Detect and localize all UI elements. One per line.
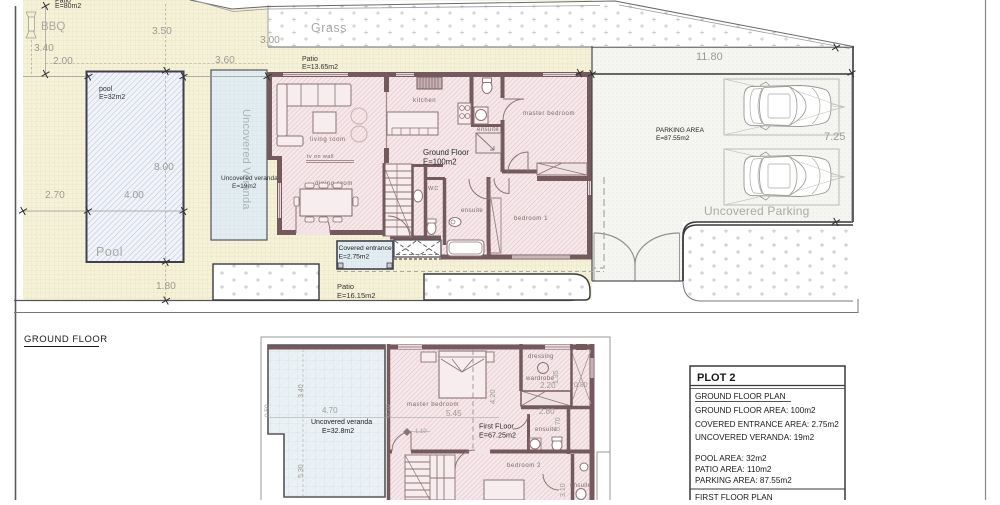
svg-text:living room: living room (310, 137, 346, 143)
svg-text:E=100m2: E=100m2 (423, 158, 457, 167)
svg-text:E=19m2: E=19m2 (232, 183, 257, 190)
svg-text:ensuite: ensuite (477, 127, 499, 133)
svg-text:E=32.8m2: E=32.8m2 (322, 428, 354, 435)
svg-text:E=87.55m2: E=87.55m2 (656, 135, 690, 142)
svg-text:ensuite: ensuite (461, 208, 483, 214)
svg-text:Patio: Patio (337, 282, 354, 291)
svg-text:POOL AREA: 32m2: POOL AREA: 32m2 (695, 454, 767, 463)
svg-text:kitchen: kitchen (413, 98, 436, 104)
svg-text:tv on wall: tv on wall (307, 154, 334, 160)
svg-text:W.C: W.C (428, 186, 438, 192)
svg-text:E=16.15m2: E=16.15m2 (337, 291, 376, 300)
svg-text:8.00: 8.00 (154, 162, 174, 173)
svg-text:GROUND FLOOR PLAN: GROUND FLOOR PLAN (695, 392, 786, 401)
svg-text:E=2.75m2: E=2.75m2 (339, 254, 370, 261)
svg-text:1.35: 1.35 (553, 370, 560, 384)
svg-text:pool: pool (99, 86, 113, 93)
svg-text:Covered entrance: Covered entrance (339, 245, 392, 252)
svg-text:7.25: 7.25 (824, 131, 845, 143)
svg-text:FIRST FLOOR PLAN: FIRST FLOOR PLAN (695, 493, 773, 500)
svg-text:3.10: 3.10 (560, 483, 567, 497)
svg-text:5.45: 5.45 (446, 409, 462, 418)
svg-text:PATIO AREA: 110m2: PATIO AREA: 110m2 (695, 465, 772, 474)
svg-text:E=32m2: E=32m2 (99, 94, 125, 101)
svg-text:Uncovered Parking: Uncovered Parking (704, 204, 809, 218)
svg-text:First FLoor: First FLoor (479, 422, 514, 431)
svg-text:3.60: 3.60 (215, 55, 235, 66)
svg-text:GROUND FLOOR AREA: 100m2: GROUND FLOOR AREA: 100m2 (695, 406, 816, 415)
svg-text:master bedroom: master bedroom (407, 402, 459, 408)
svg-text:PARKING AREA: PARKING AREA (656, 127, 705, 134)
svg-text:2.00: 2.00 (53, 56, 73, 67)
svg-text:dressing: dressing (528, 354, 554, 360)
svg-text:2.70: 2.70 (45, 190, 65, 201)
svg-text:COVERED ENTRANCE AREA: 2.75m2: COVERED ENTRANCE AREA: 2.75m2 (695, 420, 839, 429)
svg-text:Ground Floor: Ground Floor (423, 148, 469, 157)
svg-text:0.80: 0.80 (574, 382, 588, 389)
svg-text:E=13.65m2: E=13.65m2 (302, 64, 338, 71)
svg-text:master bedroom: master bedroom (523, 111, 575, 117)
svg-text:0.20: 0.20 (385, 404, 392, 417)
svg-text:UNCOVERED VERANDA: 19m2: UNCOVERED VERANDA: 19m2 (695, 433, 815, 442)
svg-text:bedroom 1: bedroom 1 (514, 216, 548, 222)
svg-text:E=80m2: E=80m2 (55, 3, 81, 10)
svg-text:4.70: 4.70 (322, 406, 338, 415)
svg-text:Pool: Pool (96, 245, 123, 259)
svg-text:1.80: 1.80 (156, 281, 176, 292)
svg-text:PARKING AREA: 87.55m2: PARKING AREA: 87.55m2 (695, 476, 792, 485)
svg-text:3.00: 3.00 (260, 35, 280, 46)
svg-text:PLOT 2: PLOT 2 (697, 372, 736, 384)
svg-text:3.50: 3.50 (152, 26, 172, 37)
svg-text:Uncovered Veranda: Uncovered Veranda (240, 109, 252, 210)
svg-text:Patio: Patio (302, 56, 318, 63)
svg-text:4.00: 4.00 (124, 190, 144, 201)
svg-text:Uncovered veranda: Uncovered veranda (221, 175, 278, 182)
svg-text:Uncovered veranda: Uncovered veranda (311, 419, 372, 426)
svg-text:4.20: 4.20 (488, 389, 497, 404)
svg-text:0.70: 0.70 (555, 417, 562, 431)
svg-text:BBQ: BBQ (41, 21, 65, 33)
svg-text:5.30: 5.30 (298, 464, 305, 478)
svg-text:3.40: 3.40 (34, 43, 54, 54)
svg-text:Grass: Grass (311, 21, 347, 35)
svg-text:0.50: 0.50 (264, 404, 271, 417)
svg-text:1.10: 1.10 (415, 429, 427, 435)
svg-text:3.40: 3.40 (298, 384, 305, 398)
svg-text:bedroom 2: bedroom 2 (507, 463, 541, 469)
svg-text:11.80: 11.80 (696, 51, 723, 63)
svg-text:2.80: 2.80 (539, 407, 555, 416)
svg-text:E=67.25m2: E=67.25m2 (479, 431, 516, 440)
svg-text:GROUND FLOOR: GROUND FLOOR (24, 334, 108, 345)
